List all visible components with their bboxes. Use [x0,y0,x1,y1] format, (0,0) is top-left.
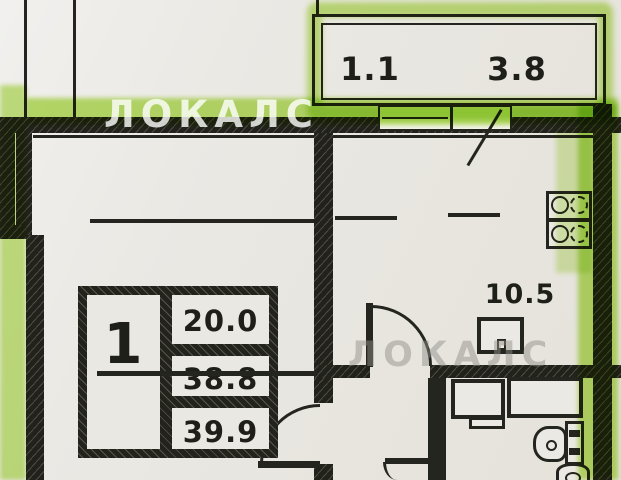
kitchen-area-label: 10.5 [478,279,562,310]
watermark-lokals-top: ЛОКАЛС [104,93,319,136]
washing-machine-lid [469,417,505,429]
entrance-door-arc [383,462,397,480]
bathtub-icon [507,377,583,418]
wall-interior-vertical-upper [314,133,333,403]
watermark-lokals-middle: ЛОКАЛС [348,335,553,375]
stamp-total-area-cell: 39.9 [172,408,269,449]
total-area-value: 39.9 [172,415,269,449]
toilet-drain-icon [546,440,557,451]
stamp-living-area-cell: 20.0 [172,295,269,344]
washing-machine-icon [451,379,505,419]
wall-left-lower [26,235,44,480]
floor-plan: 1 20.0 38.8 39.9 1.1 3.8 10.5 ЛОКАЛС ЛОК… [0,0,621,480]
zone-line [97,371,317,376]
living-room-door-leaf [258,461,320,468]
highlight-left-wall [0,85,26,480]
rooms-count: 1 [87,317,160,373]
stamp-apartment-area-cell: 38.8 [172,356,269,396]
apartment-area-value: 38.8 [172,362,269,396]
wall-bathroom-partition [428,378,446,480]
toilet-bowl-icon [533,426,567,462]
beam-line-dash [448,213,500,217]
beam-line-segment-1 [90,219,314,223]
highlight-kitchen-inner [556,128,592,273]
beam-line-segment-2 [335,216,397,220]
living-area-value: 20.0 [172,304,269,338]
